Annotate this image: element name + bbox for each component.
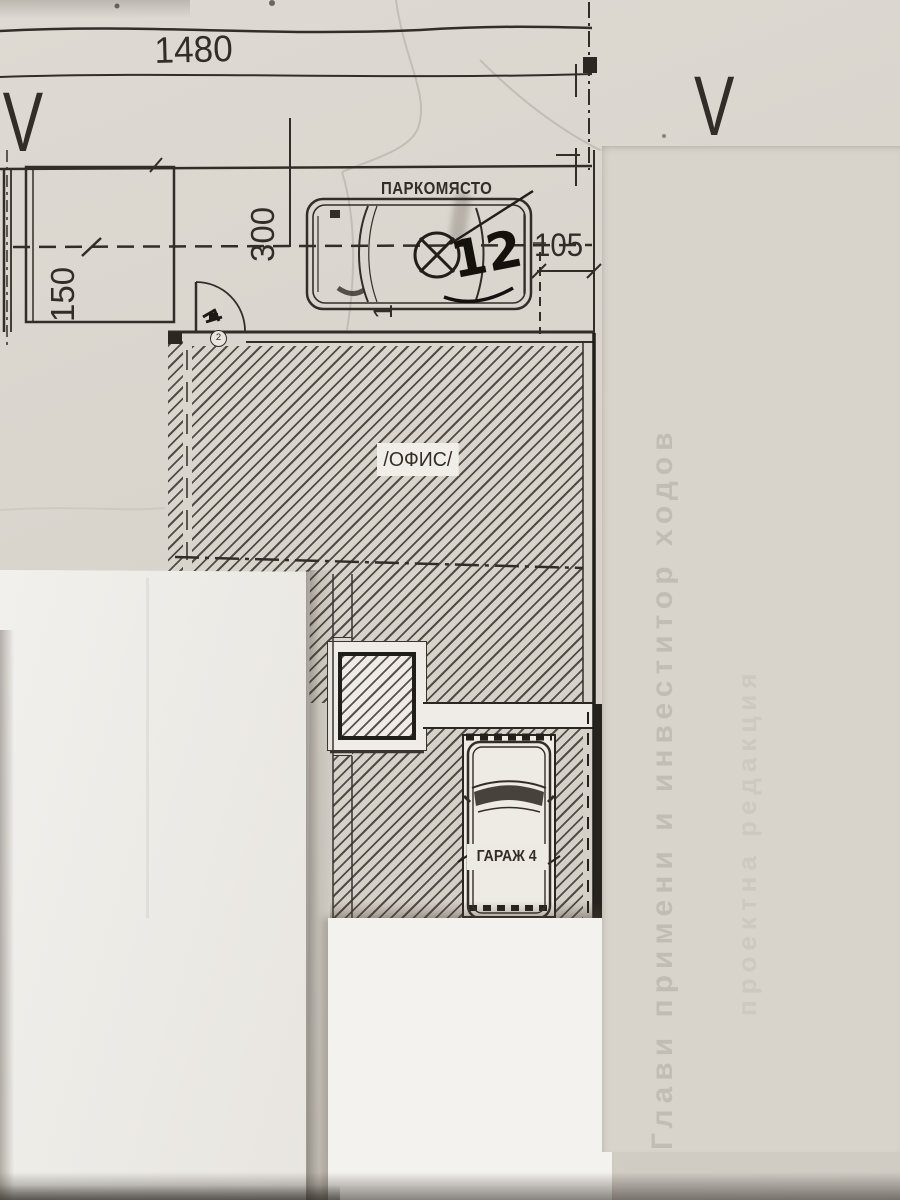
overlay-sheet-right: Глави примени и инвеститор ходов проектн… [602,146,900,1152]
bleedthrough-text: Глави примени и инвеститор ходов [646,210,680,1150]
grid-axis-V: V [694,64,734,148]
overlay-sheet-bottom [328,918,612,1200]
dimension-1480: 1480 [154,30,233,69]
grid-axis-IV: IV [0,80,43,164]
dimension-105: 105 [534,229,583,261]
door-swing [196,282,245,331]
dimension-300: 300 [246,207,279,262]
overlay-sheet-bottom-left [0,570,310,1200]
paper-edge-curl-shadow [0,630,14,1200]
lower-wall-lines [330,574,424,918]
dimension-partial: 1 [370,304,397,319]
car-top-view-garage [464,742,554,918]
office-room-label: /ОФИС/ [377,443,459,476]
top-dimension-band [0,2,597,186]
photo-top-shadow [0,0,190,18]
garage-room-label: ГАРАЖ 4 [467,844,546,870]
bleedthrough-text-2: проектна редакция [732,256,763,1016]
photo-of-floor-plan: 1480 IV V ПАРКОМЯСТО 12 105 150 300 1 /О… [0,0,900,1200]
photo-bottom-left-shadow [0,1185,340,1200]
handwritten-parking-number: 12 [447,223,526,287]
door-reference-mark: 2 [210,330,227,347]
sheet-crease [146,578,149,918]
parking-space-title: ПАРКОМЯСТО [381,180,492,198]
dimension-150: 150 [46,267,79,322]
